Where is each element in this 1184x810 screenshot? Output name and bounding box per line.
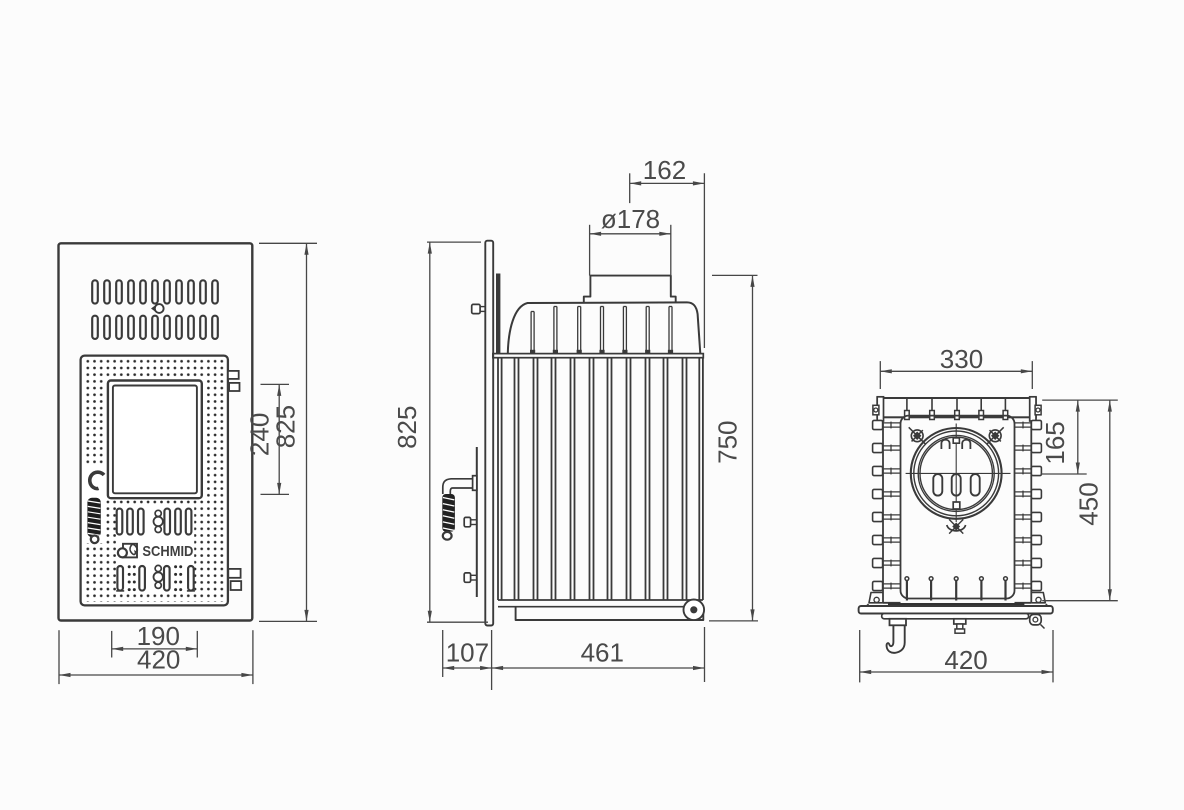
svg-text:ø178: ø178 [601, 204, 660, 234]
svg-text:107: 107 [446, 638, 489, 668]
svg-text:SCHMID: SCHMID [142, 543, 193, 560]
svg-text:825: 825 [392, 406, 422, 449]
svg-text:825: 825 [270, 405, 300, 448]
svg-text:750: 750 [712, 421, 742, 464]
svg-text:330: 330 [940, 344, 983, 374]
svg-text:420: 420 [944, 645, 987, 675]
svg-text:162: 162 [643, 155, 686, 185]
svg-text:420: 420 [137, 644, 180, 674]
svg-text:165: 165 [1040, 421, 1070, 464]
svg-text:450: 450 [1073, 482, 1103, 525]
svg-text:461: 461 [581, 638, 624, 668]
